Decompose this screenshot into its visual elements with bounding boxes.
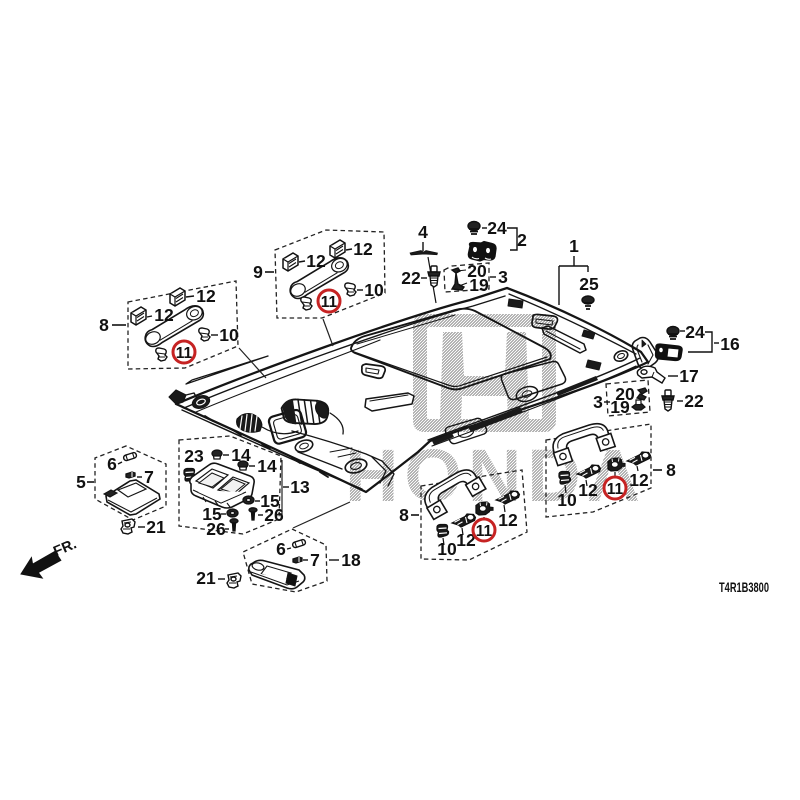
- svg-text:5: 5: [76, 472, 86, 492]
- svg-text:2: 2: [517, 230, 527, 250]
- svg-text:10: 10: [437, 539, 457, 559]
- svg-text:3: 3: [593, 392, 603, 412]
- svg-text:4: 4: [418, 222, 428, 242]
- svg-text:12: 12: [154, 305, 174, 325]
- svg-text:21: 21: [146, 517, 166, 537]
- svg-text:8: 8: [399, 505, 409, 525]
- svg-text:22: 22: [684, 391, 704, 411]
- svg-text:11: 11: [607, 481, 624, 498]
- svg-text:10: 10: [364, 280, 384, 300]
- svg-text:T4R1B3800: T4R1B3800: [719, 579, 769, 595]
- svg-text:16: 16: [720, 334, 740, 354]
- svg-text:3: 3: [498, 267, 508, 287]
- svg-text:17: 17: [679, 366, 698, 386]
- svg-text:19: 19: [469, 275, 489, 295]
- svg-text:8: 8: [666, 460, 676, 480]
- svg-text:11: 11: [321, 294, 338, 311]
- svg-text:12: 12: [196, 286, 216, 306]
- svg-text:24: 24: [487, 218, 507, 238]
- svg-text:13: 13: [290, 477, 310, 497]
- svg-text:12: 12: [629, 470, 649, 490]
- svg-text:12: 12: [498, 510, 518, 530]
- svg-text:14: 14: [257, 456, 277, 476]
- svg-text:11: 11: [176, 345, 193, 362]
- svg-text:21: 21: [196, 568, 216, 588]
- svg-text:24: 24: [685, 322, 705, 342]
- svg-text:26: 26: [206, 519, 226, 539]
- svg-text:11: 11: [476, 523, 493, 540]
- svg-text:12: 12: [578, 480, 598, 500]
- svg-text:10: 10: [219, 325, 239, 345]
- svg-text:26: 26: [264, 505, 284, 525]
- svg-text:8: 8: [99, 315, 109, 335]
- svg-text:10: 10: [557, 490, 577, 510]
- svg-text:1: 1: [569, 236, 579, 256]
- svg-text:7: 7: [310, 550, 320, 570]
- svg-text:12: 12: [306, 251, 326, 271]
- svg-text:6: 6: [276, 539, 286, 559]
- svg-text:25: 25: [579, 274, 599, 294]
- svg-text:7: 7: [144, 467, 154, 487]
- svg-text:18: 18: [341, 550, 361, 570]
- svg-text:19: 19: [610, 397, 630, 417]
- svg-text:9: 9: [253, 262, 263, 282]
- svg-text:12: 12: [353, 239, 373, 259]
- svg-text:22: 22: [401, 268, 421, 288]
- svg-text:23: 23: [184, 446, 204, 466]
- svg-text:6: 6: [107, 454, 117, 474]
